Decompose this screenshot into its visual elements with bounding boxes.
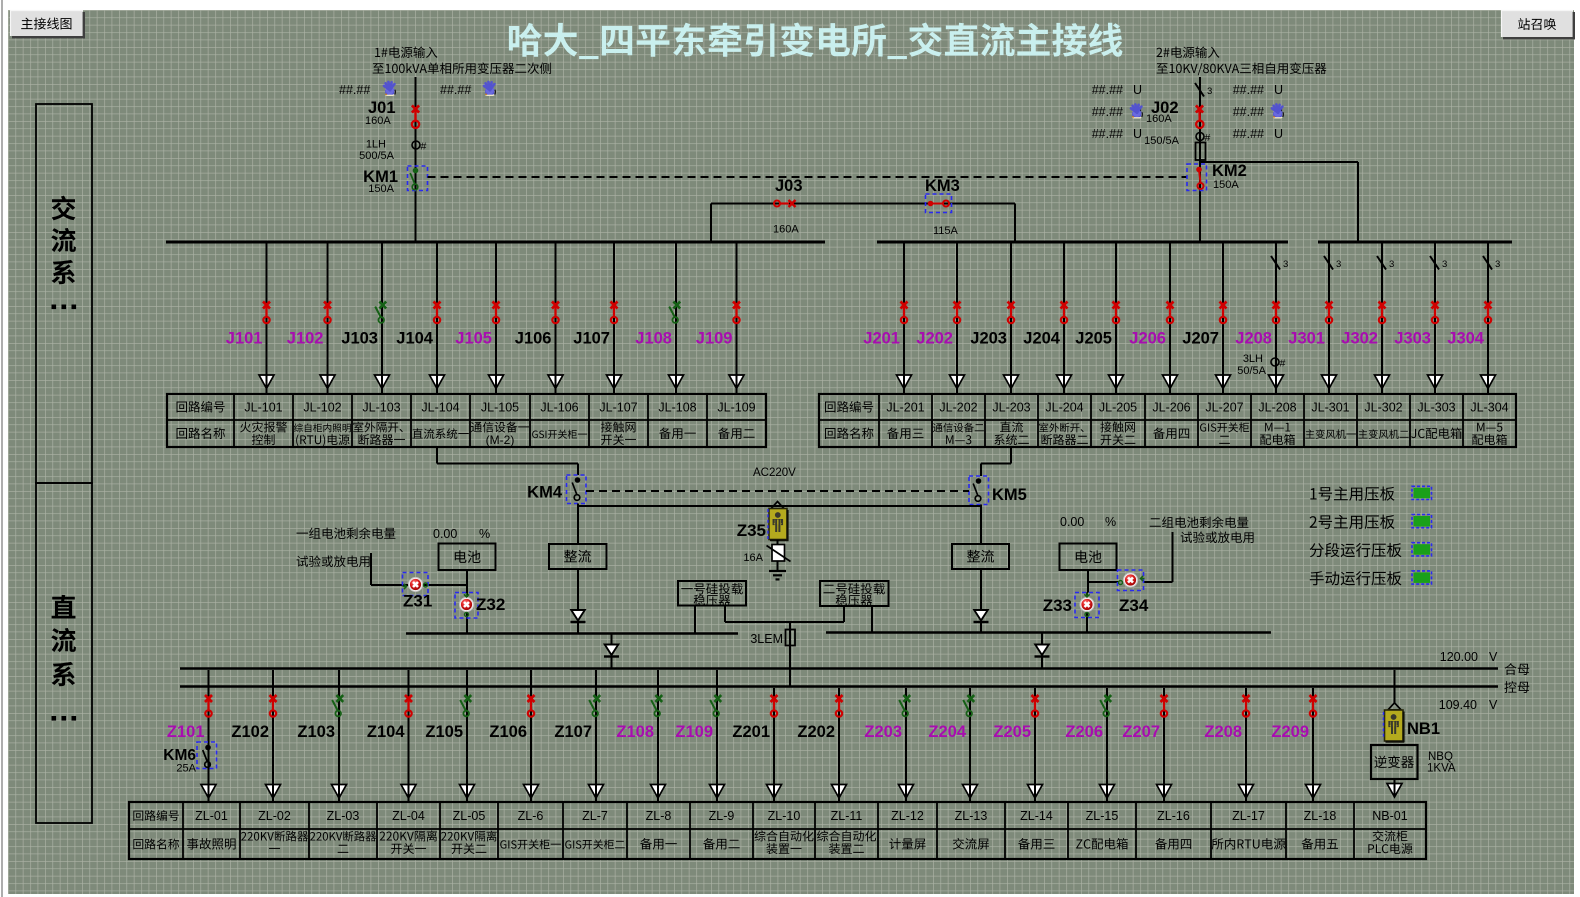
svg-text:J03: J03 — [775, 177, 803, 195]
svg-text:J201: J201 — [863, 330, 900, 348]
svg-text:JL-101: JL-101 — [244, 401, 282, 415]
svg-text:##.##: ##.## — [440, 83, 471, 97]
svg-text:Z34: Z34 — [1119, 596, 1149, 615]
svg-text:Z102: Z102 — [231, 723, 269, 741]
svg-text:ZL-04: ZL-04 — [392, 809, 425, 823]
svg-text:JL-109: JL-109 — [717, 401, 755, 415]
svg-text:ZL-6: ZL-6 — [518, 809, 544, 823]
svg-text:Z105: Z105 — [425, 723, 463, 741]
svg-text:115A: 115A — [933, 225, 959, 237]
svg-text:J204: J204 — [1023, 330, 1061, 348]
svg-text:Z208: Z208 — [1204, 723, 1242, 741]
svg-text:109.40: 109.40 — [1439, 698, 1477, 712]
svg-text:Z106: Z106 — [489, 723, 527, 741]
svg-text:JL-105: JL-105 — [481, 401, 519, 415]
svg-text:V: V — [1489, 650, 1498, 664]
svg-text:Z209: Z209 — [1271, 723, 1309, 741]
svg-text:J104: J104 — [396, 330, 434, 348]
svg-text:(M-2): (M-2) — [486, 433, 515, 447]
svg-text:J103: J103 — [341, 330, 378, 348]
svg-text:NB-01: NB-01 — [1372, 809, 1407, 823]
svg-text:150/5A: 150/5A — [1144, 135, 1180, 147]
svg-text:ZL-13: ZL-13 — [955, 809, 988, 823]
svg-text:KM5: KM5 — [992, 486, 1027, 504]
svg-text:ZL-01: ZL-01 — [195, 809, 228, 823]
svg-text:JL-206: JL-206 — [1152, 401, 1190, 415]
svg-text:3LEM: 3LEM — [750, 632, 783, 646]
svg-text:ZL-9: ZL-9 — [709, 809, 735, 823]
svg-text:1LH: 1LH — [366, 139, 386, 151]
svg-text:3: 3 — [1442, 259, 1447, 270]
svg-text:0.00: 0.00 — [433, 527, 457, 541]
svg-text:ZL-05: ZL-05 — [453, 809, 486, 823]
svg-text:3: 3 — [1207, 86, 1212, 97]
svg-text:3: 3 — [1495, 259, 1500, 270]
svg-text:##.##: ##.## — [1233, 83, 1264, 97]
svg-text:JL-102: JL-102 — [303, 401, 341, 415]
svg-text:Z107: Z107 — [554, 723, 592, 741]
svg-text:Z33: Z33 — [1043, 596, 1072, 615]
svg-text:JL-304: JL-304 — [1470, 401, 1508, 415]
svg-text:##.##: ##.## — [1092, 127, 1123, 141]
svg-text:%: % — [1105, 515, 1116, 529]
svg-text:U: U — [1274, 127, 1283, 141]
svg-text:Z203: Z203 — [864, 723, 902, 741]
svg-text:160A: 160A — [365, 115, 391, 127]
svg-text:U: U — [1133, 83, 1142, 97]
svg-text:J101: J101 — [226, 330, 263, 348]
svg-text:J208: J208 — [1235, 330, 1272, 348]
svg-text:Z35: Z35 — [737, 521, 766, 540]
svg-text:J109: J109 — [696, 330, 733, 348]
svg-text:#: # — [1280, 358, 1286, 370]
svg-text:Z206: Z206 — [1065, 723, 1103, 741]
svg-text:##.##: ##.## — [1233, 105, 1264, 119]
svg-text:NBQ: NBQ — [1428, 751, 1453, 763]
svg-text:ZL-18: ZL-18 — [1304, 809, 1337, 823]
svg-text:J206: J206 — [1129, 330, 1166, 348]
svg-text:JL-106: JL-106 — [540, 401, 578, 415]
svg-text:KM3: KM3 — [925, 177, 960, 195]
svg-text:J106: J106 — [515, 330, 552, 348]
svg-text:V: V — [1489, 698, 1498, 712]
svg-text:Z103: Z103 — [297, 723, 335, 741]
svg-text:J202: J202 — [916, 330, 953, 348]
svg-text:%: % — [479, 527, 490, 541]
svg-text:ZL-7: ZL-7 — [582, 809, 608, 823]
svg-text:Z101: Z101 — [167, 723, 205, 741]
svg-text:##.##: ##.## — [1233, 127, 1264, 141]
svg-text:NB1: NB1 — [1407, 720, 1440, 738]
svg-text:3LH: 3LH — [1243, 353, 1263, 365]
svg-text:##.##: ##.## — [1092, 105, 1123, 119]
svg-text:JL-207: JL-207 — [1205, 401, 1243, 415]
svg-text:JL-104: JL-104 — [421, 401, 459, 415]
svg-text:JL-208: JL-208 — [1258, 401, 1296, 415]
svg-text:ZL-11: ZL-11 — [831, 809, 863, 823]
svg-text:Z202: Z202 — [797, 723, 835, 741]
svg-text:KM2: KM2 — [1212, 162, 1247, 180]
svg-text:Z104: Z104 — [367, 723, 405, 741]
svg-text:3: 3 — [1283, 259, 1288, 270]
svg-text:JL-107: JL-107 — [599, 401, 637, 415]
svg-text:Z205: Z205 — [993, 723, 1031, 741]
svg-text:JL-203: JL-203 — [992, 401, 1030, 415]
svg-text:25A: 25A — [176, 763, 196, 775]
svg-text:U: U — [1133, 127, 1142, 141]
svg-text:JL-301: JL-301 — [1311, 401, 1349, 415]
svg-text:ZL-8: ZL-8 — [646, 809, 672, 823]
svg-text:150A: 150A — [1213, 179, 1239, 191]
svg-text:JL-108: JL-108 — [658, 401, 696, 415]
svg-text:ZL-15: ZL-15 — [1086, 809, 1119, 823]
svg-text:500/5A: 500/5A — [359, 150, 395, 162]
svg-text:ZL-10: ZL-10 — [768, 809, 801, 823]
svg-text:J102: J102 — [287, 330, 324, 348]
svg-text:KM4: KM4 — [527, 484, 563, 502]
svg-text:JL-303: JL-303 — [1417, 401, 1455, 415]
svg-text:Z204: Z204 — [928, 723, 966, 741]
svg-text:ZL-16: ZL-16 — [1157, 809, 1190, 823]
svg-text:J205: J205 — [1075, 330, 1112, 348]
svg-text:J207: J207 — [1182, 330, 1219, 348]
svg-text:J304: J304 — [1447, 330, 1485, 348]
svg-text:##.##: ##.## — [339, 83, 370, 97]
svg-text:JL-103: JL-103 — [362, 401, 400, 415]
svg-text:J105: J105 — [455, 330, 492, 348]
svg-text:ZL-12: ZL-12 — [891, 809, 924, 823]
svg-text:ZL-03: ZL-03 — [327, 809, 360, 823]
svg-text:Z201: Z201 — [732, 723, 770, 741]
svg-text:##.##: ##.## — [1092, 83, 1123, 97]
svg-text:J303: J303 — [1394, 330, 1431, 348]
svg-text:AC220V: AC220V — [753, 467, 796, 479]
svg-text:J108: J108 — [635, 330, 672, 348]
svg-text:150A: 150A — [368, 183, 394, 195]
svg-text:J302: J302 — [1341, 330, 1378, 348]
svg-text:Z109: Z109 — [675, 723, 713, 741]
svg-text:J107: J107 — [573, 330, 610, 348]
svg-text:50/5A: 50/5A — [1237, 365, 1266, 377]
svg-text:ZL-14: ZL-14 — [1020, 809, 1053, 823]
svg-text:JL-204: JL-204 — [1045, 401, 1083, 415]
svg-text:ZL-17: ZL-17 — [1232, 809, 1265, 823]
svg-text:ZL-02: ZL-02 — [258, 809, 291, 823]
svg-text:U: U — [1274, 83, 1283, 97]
svg-text:JL-205: JL-205 — [1099, 401, 1137, 415]
svg-text:JL-202: JL-202 — [939, 401, 977, 415]
svg-text:Z31: Z31 — [403, 592, 432, 611]
svg-text:1KVA: 1KVA — [1427, 763, 1456, 775]
svg-text:J203: J203 — [970, 330, 1007, 348]
svg-text:16A: 16A — [743, 552, 763, 564]
svg-text:160A: 160A — [773, 224, 799, 236]
svg-text:#: # — [421, 141, 427, 153]
svg-text:JL-201: JL-201 — [886, 401, 924, 415]
svg-text:120.00: 120.00 — [1440, 650, 1478, 664]
svg-text:JL-302: JL-302 — [1364, 401, 1402, 415]
svg-text:Z207: Z207 — [1122, 723, 1160, 741]
svg-text:3: 3 — [1336, 259, 1341, 270]
svg-text:0.00: 0.00 — [1060, 515, 1084, 529]
svg-text:Z32: Z32 — [476, 595, 505, 614]
svg-text:Z108: Z108 — [616, 723, 654, 741]
svg-text:KM6: KM6 — [163, 747, 196, 764]
svg-text:J301: J301 — [1288, 330, 1325, 348]
svg-text:3: 3 — [1389, 259, 1394, 270]
svg-text:160A: 160A — [1146, 113, 1172, 125]
